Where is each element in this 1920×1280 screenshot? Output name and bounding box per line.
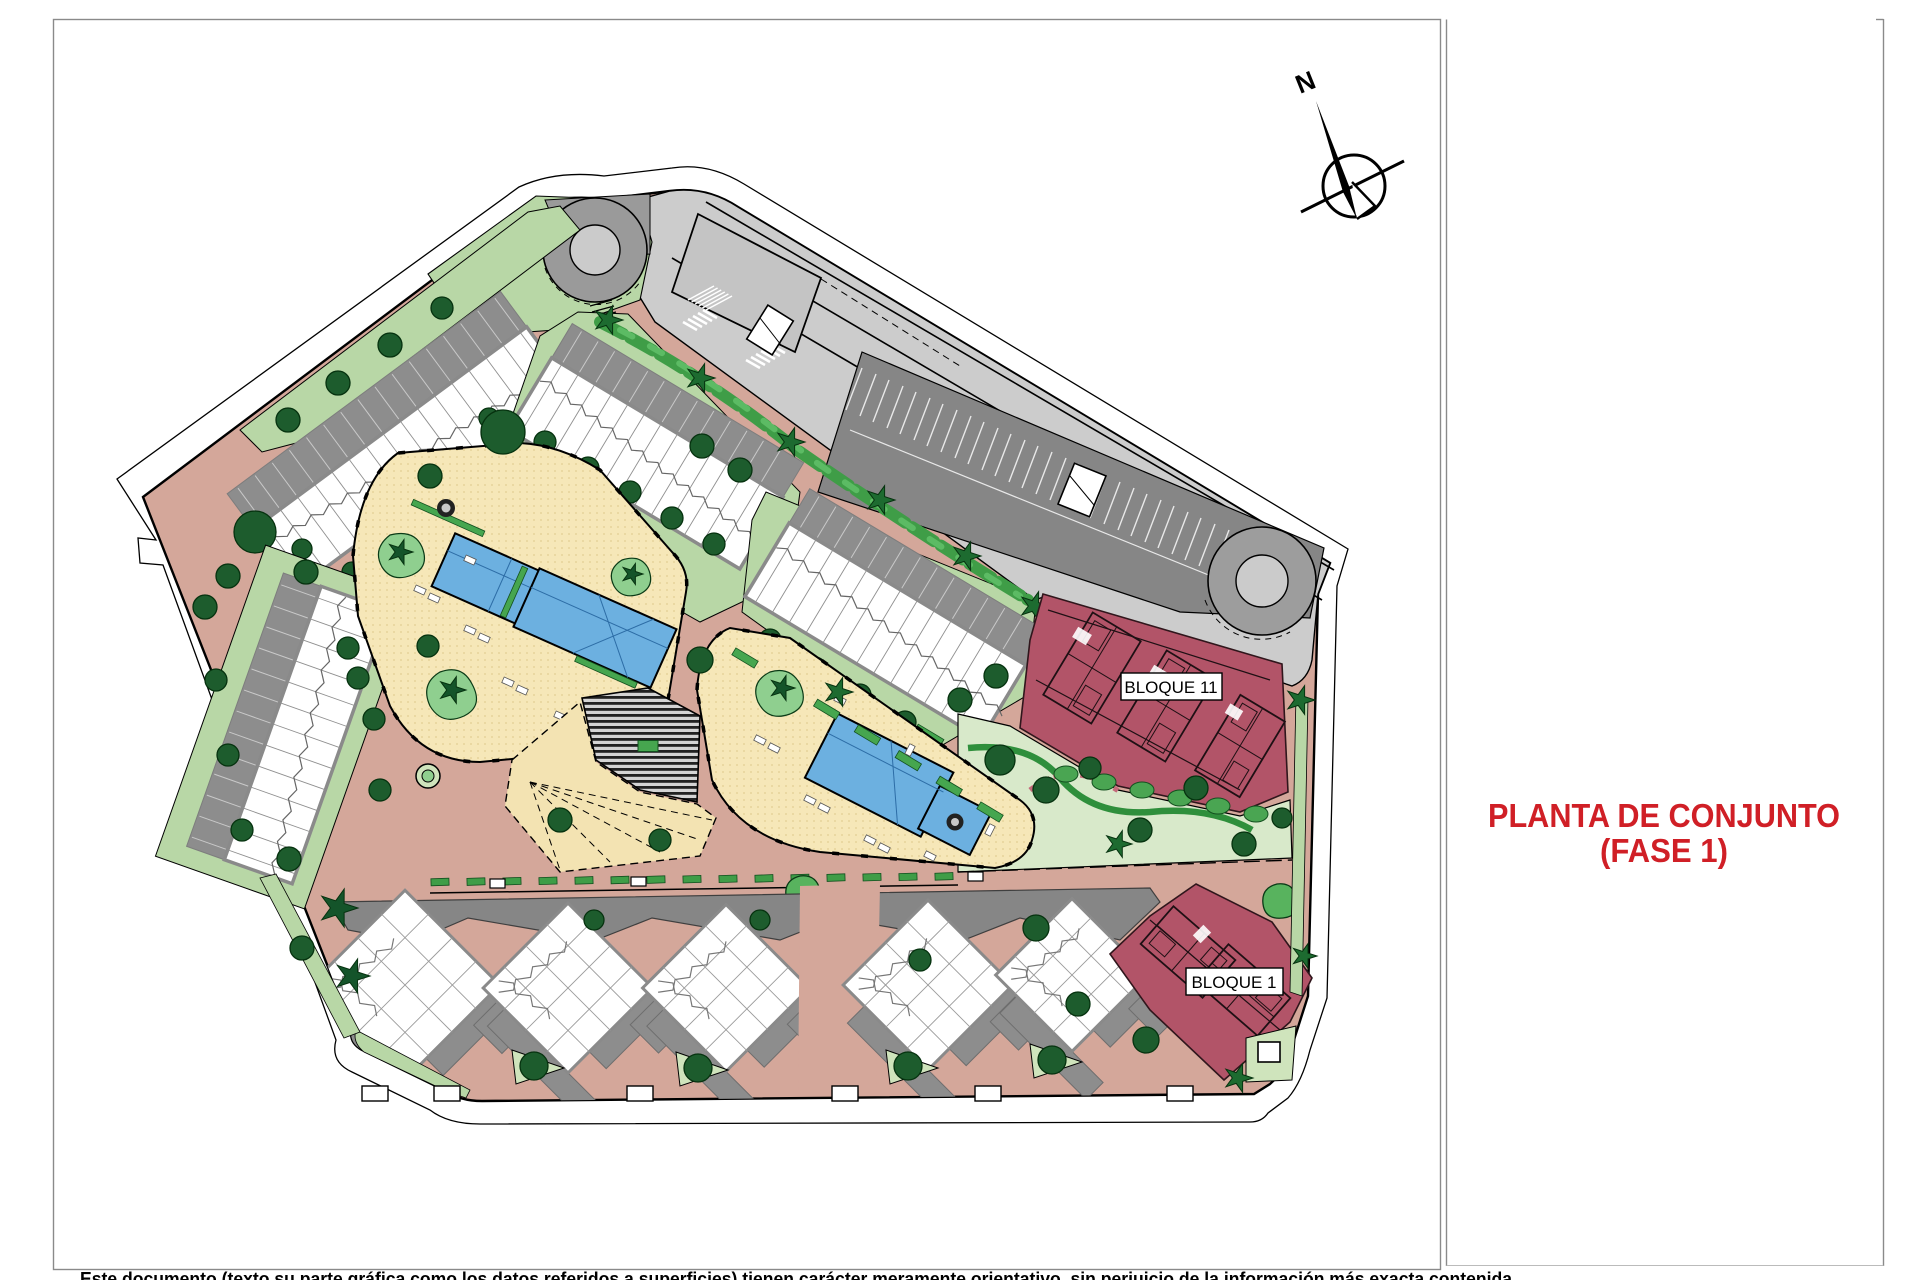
svg-text:BLOQUE 1: BLOQUE 1 [1191,973,1276,992]
svg-text:(FASE 1): (FASE 1) [1600,832,1728,869]
svg-text:Este documento (texto su parte: Este documento (texto su parte gráfica c… [80,1269,1513,1280]
svg-text:PLANTA DE CONJUNTO: PLANTA DE CONJUNTO [1488,797,1840,834]
svg-text:BLOQUE 11: BLOQUE 11 [1124,678,1217,697]
